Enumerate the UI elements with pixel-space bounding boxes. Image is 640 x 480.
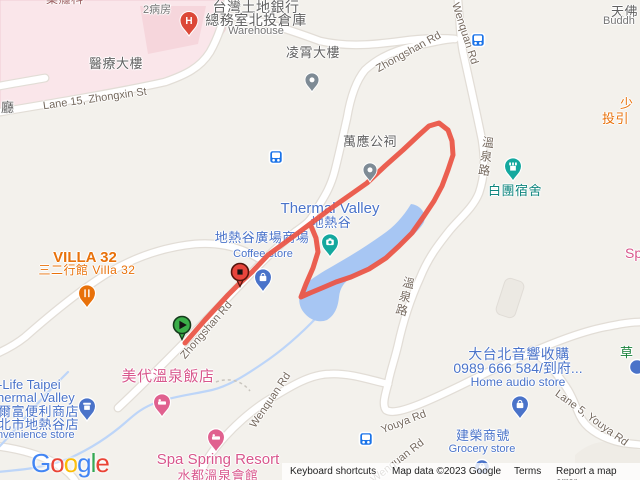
baituan-pin[interactable] [504, 158, 521, 181]
stop-icon [237, 269, 242, 274]
bus-wheel [479, 42, 482, 45]
villa32-pin[interactable] [78, 285, 95, 308]
logo-letter: o [50, 448, 63, 478]
edge-poi-pin[interactable] [630, 360, 640, 375]
rook-icon [510, 166, 516, 171]
rook-tower [509, 163, 511, 166]
bed-icon [212, 436, 220, 439]
dot-icon [310, 77, 315, 82]
bag-icon [260, 276, 267, 281]
audio-store-pin[interactable] [511, 396, 528, 419]
fork-knife-icon [84, 289, 85, 297]
hospital-icon: H [185, 16, 192, 27]
bus-wheel [474, 42, 477, 45]
route-end-marker[interactable] [232, 264, 249, 287]
store-body-icon [84, 406, 90, 410]
bag-icon [517, 403, 524, 408]
logo-letter: G [31, 448, 50, 478]
pin-body [153, 394, 170, 417]
report-error-link[interactable]: Report a map error [556, 466, 640, 480]
camera-top [329, 238, 332, 240]
terms-link[interactable]: Terms [514, 466, 541, 477]
map-footer: Keyboard shortcuts Map data ©2023 Google… [282, 463, 640, 480]
route-marker-layer: H [0, 0, 640, 480]
bus-wheel [367, 441, 370, 444]
map-canvas[interactable]: 藥癮科 2病房 醫療大樓 台灣土地銀行 總務室北投倉庫 Warehouse 凌霄… [0, 0, 640, 480]
pin-body [321, 234, 338, 257]
bed-pillow [158, 399, 160, 401]
coffee-store-pin[interactable] [254, 269, 271, 292]
bus-body [362, 435, 370, 441]
bus-stop-icon[interactable] [472, 34, 485, 47]
rook-tower [515, 163, 517, 166]
bus-wheel [272, 159, 275, 162]
thermal-valley-pin[interactable] [321, 234, 338, 257]
pin-body [363, 163, 377, 182]
bus-stop-icon[interactable] [270, 151, 283, 164]
bus-body [272, 153, 280, 159]
pin-body [78, 285, 95, 308]
logo-letter: g [77, 448, 90, 478]
hospital-pin[interactable]: H [180, 12, 198, 37]
pin-body [305, 73, 319, 92]
bus-stop-icon[interactable] [360, 433, 373, 446]
store-awning-icon [83, 403, 91, 405]
pin-body [207, 429, 224, 452]
google-logo[interactable]: Google [31, 448, 109, 479]
rook-tower [512, 163, 514, 166]
camera-lens [328, 241, 331, 244]
bed-pillow [212, 434, 214, 436]
spa-resort-pin[interactable] [207, 429, 224, 452]
logo-letter: o [64, 448, 77, 478]
bus-wheel [277, 159, 280, 162]
convenience-store-pin[interactable] [78, 398, 95, 421]
route-path [185, 123, 453, 343]
bus-wheel [362, 441, 365, 444]
map-data-attribution: Map data ©2023 Google [392, 466, 501, 477]
lingxiao-pin[interactable] [305, 73, 319, 92]
bus-body [474, 36, 482, 42]
dot-icon [368, 167, 373, 172]
meidai-hotel-pin[interactable] [153, 394, 170, 417]
fork-knife-icon [88, 289, 89, 297]
keyboard-shortcuts-button[interactable]: Keyboard shortcuts [290, 466, 376, 477]
logo-letter: e [95, 448, 108, 478]
bed-icon [158, 401, 166, 404]
wanying-pin[interactable] [363, 163, 377, 182]
